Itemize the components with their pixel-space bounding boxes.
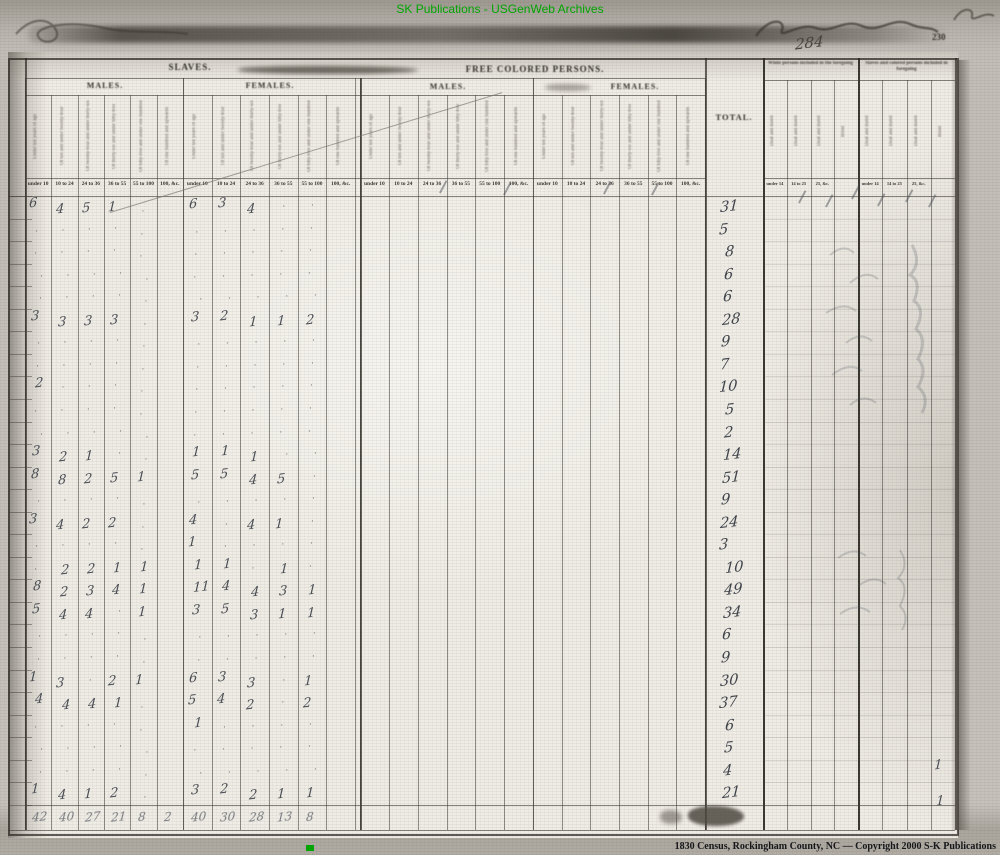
header-total-label: TOTAL. — [706, 112, 762, 122]
row-total-value: 21 — [722, 784, 741, 802]
gutter-row-tick — [10, 241, 32, 242]
table-column-line — [418, 95, 419, 830]
census-cell-value: 2 — [108, 515, 117, 531]
table-column-line — [533, 78, 534, 830]
ditto-dot: · — [313, 472, 316, 482]
ditto-dot: · — [311, 517, 314, 527]
census-cell-value: 2 — [220, 782, 229, 798]
age-range-header: 10 to 24 — [562, 181, 591, 187]
age-range-header: under 14 — [763, 181, 787, 186]
gutter-row-tick — [10, 805, 32, 806]
right-margin-mark: 1 — [936, 793, 945, 809]
row-total-value: 3 — [719, 537, 729, 554]
census-cell-value: 1 — [221, 443, 230, 459]
column-header-rotated: Deaf and dumb — [794, 88, 804, 174]
census-cell-value: 3 — [192, 602, 201, 618]
age-range-header: under 10 — [533, 181, 562, 187]
ditto-dot: · — [226, 339, 229, 349]
ditto-dot: · — [308, 269, 311, 279]
header-fc-females-label: FEMALES. — [580, 82, 690, 91]
census-cell-value: 1 — [306, 786, 315, 802]
census-cell-value: 4 — [189, 512, 198, 528]
ditto-dot: · — [64, 338, 67, 348]
census-cell-value: 4 — [246, 201, 255, 217]
table-column-line — [326, 95, 327, 830]
ditto-dot: · — [89, 676, 92, 686]
bleed-through-scribbles-lower — [830, 540, 950, 630]
census-cell-value: 3 — [110, 312, 119, 328]
header-slaves-females-label: FEMALES. — [200, 81, 340, 90]
census-cell-value: 3 — [249, 607, 258, 623]
gutter-row-tick — [10, 534, 32, 535]
column-header-rotated: Of ten and under twenty-four — [398, 98, 408, 174]
census-cell-value: 3 — [57, 314, 66, 330]
census-cell-value: 2 — [58, 449, 67, 465]
ditto-dot: · — [67, 744, 70, 754]
gutter-row-tick — [10, 579, 32, 580]
ditto-dot: · — [34, 723, 37, 733]
ditto-dot: · — [257, 767, 260, 777]
table-column-line — [504, 95, 505, 830]
ditto-dot: · — [62, 226, 65, 236]
ditto-dot: · — [113, 404, 116, 414]
row-total-value: 24 — [720, 513, 739, 531]
ditto-dot: · — [90, 653, 93, 663]
ditto-dot: · — [146, 433, 149, 443]
ditto-dot: · — [284, 630, 287, 640]
table-row-line — [763, 670, 955, 671]
ditto-dot: · — [193, 431, 196, 441]
table-row-line — [763, 715, 955, 716]
table-column-line — [157, 95, 158, 830]
census-cell-value: 5 — [220, 466, 229, 482]
row-total-value: 51 — [722, 468, 741, 486]
gutter-row-tick — [10, 399, 32, 400]
census-cell-value: 1 — [194, 557, 203, 573]
age-range-header: 55 to 100 — [475, 181, 504, 187]
census-cell-value: 4 — [35, 691, 44, 707]
ditto-dot: · — [87, 405, 90, 415]
census-cell-value: 1 — [114, 695, 123, 711]
row-total-value: 7 — [720, 356, 730, 373]
table-column-line — [269, 95, 270, 830]
census-cell-value: 2 — [306, 312, 315, 328]
ditto-dot: · — [88, 382, 91, 392]
ditto-dot: · — [144, 320, 147, 330]
gutter-row-tick — [10, 444, 32, 445]
ditto-dot: · — [67, 271, 70, 281]
ditto-dot: · — [119, 269, 122, 279]
ditto-dot: · — [89, 360, 92, 370]
age-range-header: 25, &c. — [907, 181, 931, 186]
ditto-dot: · — [223, 723, 226, 733]
row-total-value: 9 — [721, 491, 731, 508]
table-row-line — [763, 692, 955, 693]
column-tally-value: 40 — [58, 809, 74, 825]
ditto-dot: · — [61, 722, 64, 732]
census-cell-value: 5 — [188, 692, 197, 708]
ditto-dot: · — [114, 539, 117, 549]
column-header-rotated: Of one hundred and upwards — [686, 98, 696, 174]
ditto-dot: · — [145, 771, 148, 781]
column-header-rotated: Of twenty-four and under thirty-six — [86, 98, 96, 174]
census-cell-value: 2 — [110, 786, 119, 802]
ditto-dot: · — [116, 652, 119, 662]
census-cell-value: 8 — [33, 579, 42, 595]
ditto-dot: · — [37, 655, 40, 665]
ditto-dot: · — [252, 406, 255, 416]
table-row-line — [763, 444, 955, 445]
census-cell-value: 4 — [84, 606, 93, 622]
table-row-line — [25, 78, 705, 79]
header-white-persons-title: White persons included in the foregoing — [765, 61, 856, 67]
ditto-dot: · — [34, 407, 37, 417]
table-column-line — [834, 80, 835, 830]
ditto-dot: · — [285, 450, 288, 460]
census-cell-value: 4 — [250, 585, 259, 601]
column-tally-value: 28 — [248, 809, 264, 825]
row-total-value: 9 — [721, 649, 731, 666]
gutter-row-tick — [10, 624, 32, 625]
gutter-row-tick — [10, 489, 32, 490]
census-cell-value: 1 — [249, 449, 258, 465]
column-tally-value: 21 — [111, 809, 127, 825]
column-header-rotated: Of twenty-four and under thirty-six — [250, 98, 260, 174]
ditto-dot: · — [197, 498, 200, 508]
census-cell-value: 3 — [32, 443, 41, 459]
table-column-line — [811, 80, 812, 830]
column-header-rotated: Under ten years of age — [369, 98, 379, 174]
table-row-line — [25, 178, 705, 179]
census-cell-value: 1 — [192, 444, 201, 460]
census-cell-value: 5 — [32, 601, 41, 617]
census-cell-value: 1 — [137, 604, 146, 620]
gutter-row-tick — [10, 286, 32, 287]
ditto-dot: · — [93, 428, 96, 438]
column-header-rotated: Of ten and under twenty-four — [571, 98, 581, 174]
table-column-line — [931, 80, 932, 830]
gutter-row-tick — [10, 737, 32, 738]
column-header-rotated: Of one hundred and upwards — [336, 98, 346, 174]
copyright-credit-text: 1830 Census, Rockingham County, NC — Cop… — [675, 841, 996, 852]
ditto-dot: · — [199, 295, 202, 305]
census-cell-value: 3 — [83, 313, 92, 329]
ditto-dot: · — [37, 339, 40, 349]
ditto-dot: · — [140, 726, 143, 736]
column-tally-value: 13 — [277, 809, 293, 825]
census-cell-value: 2 — [59, 585, 68, 601]
census-cell-value: 1 — [134, 672, 143, 688]
age-range-header: 55 to 100 — [648, 181, 677, 187]
ditto-dot: · — [312, 652, 315, 662]
table-column-line — [212, 95, 213, 830]
ditto-dot: · — [195, 385, 198, 395]
census-cell-value: 2 — [108, 673, 117, 689]
ditto-dot: · — [140, 252, 143, 262]
table-row-line — [25, 95, 705, 96]
age-range-header: 36 to 55 — [619, 181, 648, 187]
row-total-value: 14 — [723, 446, 742, 464]
ditto-dot: · — [310, 539, 313, 549]
column-header-rotated: Of fifty-five and under one hundred — [139, 98, 149, 174]
census-cell-value: 1 — [277, 313, 286, 329]
age-range-header: 10 to 24 — [51, 181, 77, 187]
ditto-dot: · — [118, 607, 121, 617]
ditto-dot: · — [87, 247, 90, 257]
column-header-rotated: Of ten and under twenty-four — [60, 98, 70, 174]
age-range-header: under 14 — [858, 181, 882, 186]
ditto-dot: · — [222, 272, 225, 282]
column-header-rotated: Deaf and dumb — [914, 88, 924, 174]
census-cell-value: 3 — [31, 308, 40, 324]
ditto-dot: · — [199, 769, 202, 779]
column-header-rotated: Deaf and dumb — [770, 88, 780, 174]
census-cell-value: 1 — [29, 669, 38, 685]
tally-ink-blot — [688, 806, 744, 826]
ditto-dot: · — [282, 202, 285, 212]
census-cell-value: 2 — [60, 562, 69, 578]
table-column-line — [360, 78, 362, 830]
census-cell-value: 4 — [55, 517, 64, 533]
ditto-dot: · — [87, 721, 90, 731]
ditto-dot: · — [312, 336, 315, 346]
census-cell-value: 1 — [139, 559, 148, 575]
header-slaves-colored-title: Slaves and colored persons included in f… — [860, 61, 953, 73]
census-cell-value: 8 — [57, 472, 66, 488]
age-range-header: 55 to 100 — [298, 181, 327, 187]
ditto-dot: · — [114, 381, 117, 391]
census-cell-value: 5 — [110, 470, 119, 486]
row-total-value: 10 — [719, 378, 738, 396]
ditto-dot: · — [254, 361, 257, 371]
ditto-dot: · — [255, 338, 258, 348]
table-column-line — [676, 95, 677, 830]
age-range-header: 36 to 55 — [447, 181, 476, 187]
column-header-rotated: Of fifty-five and under one hundred — [485, 98, 495, 174]
ditto-dot: · — [228, 294, 231, 304]
census-cell-value: 3 — [191, 783, 200, 799]
ditto-dot: · — [281, 698, 284, 708]
ditto-dot: · — [226, 655, 229, 665]
row-total-value: 5 — [719, 221, 729, 238]
ditto-dot: · — [117, 629, 120, 639]
age-range-header: 100, &c. — [157, 181, 183, 187]
column-tally-value: 8 — [306, 810, 315, 825]
table-column-line — [475, 95, 476, 830]
ditto-dot: · — [285, 766, 288, 776]
ditto-dot: · — [146, 275, 149, 285]
age-range-header: 24 to 36 — [590, 181, 619, 187]
ditto-dot: · — [309, 720, 312, 730]
gutter-row-tick — [10, 602, 32, 603]
age-range-header: 10 to 24 — [389, 181, 418, 187]
gutter-row-tick — [10, 467, 32, 468]
column-header-rotated: Under ten years of age — [192, 98, 202, 174]
row-total-value: 28 — [722, 311, 741, 329]
ditto-dot: · — [113, 246, 116, 256]
ditto-dot: · — [312, 494, 315, 504]
ditto-dot: · — [114, 224, 117, 234]
census-cell-value: 3 — [85, 584, 94, 600]
ditto-dot: · — [309, 246, 312, 256]
row-total-value: 2 — [724, 424, 734, 441]
bleed-through-scribbles-upper — [820, 235, 955, 435]
ditto-dot: · — [310, 381, 313, 391]
table-column-line — [389, 95, 390, 830]
ditto-dot: · — [142, 523, 145, 533]
ditto-dot: · — [63, 361, 66, 371]
census-cell-value: 1 — [138, 582, 147, 598]
ditto-dot: · — [118, 291, 121, 301]
ditto-dot: · — [143, 342, 146, 352]
column-header-rotated: Deaf and dumb — [865, 88, 875, 174]
column-header-rotated: Of twenty-four and under thirty-six — [600, 98, 610, 174]
right-margin-mark: 1 — [934, 757, 943, 773]
row-total-value: 6 — [722, 627, 732, 644]
census-cell-value: 2 — [248, 788, 257, 804]
column-header-rotated: Of fifty-five and under one hundred — [657, 98, 667, 174]
ditto-dot: · — [309, 562, 312, 572]
gutter-row-tick — [10, 376, 32, 377]
age-range-header: 100, &c. — [676, 181, 705, 187]
ditto-dot: · — [279, 743, 282, 753]
census-cell-value: 1 — [307, 605, 316, 621]
table-column-line — [590, 95, 591, 830]
census-cell-value: 4 — [58, 607, 67, 623]
ditto-dot: · — [282, 360, 285, 370]
ditto-dot: · — [251, 429, 254, 439]
row-total-value: 5 — [724, 740, 734, 757]
row-total-value: 8 — [725, 243, 735, 260]
ditto-dot: · — [195, 228, 198, 238]
census-cell-value: 6 — [189, 196, 198, 212]
census-cell-value: 5 — [277, 471, 286, 487]
census-cell-value: 5 — [221, 601, 230, 617]
gutter-row-tick — [10, 760, 32, 761]
ditto-dot: · — [193, 746, 196, 756]
ditto-dot: · — [280, 247, 283, 257]
age-range-header: under 10 — [360, 181, 389, 187]
ditto-dot: · — [67, 429, 70, 439]
row-total-value: 31 — [720, 198, 739, 216]
ditto-dot: · — [253, 541, 256, 551]
age-range-header: 25, &c. — [811, 181, 835, 186]
ditto-dot: · — [253, 383, 256, 393]
ditto-dot: · — [314, 765, 317, 775]
ditto-dot: · — [118, 765, 121, 775]
column-header-rotated: Of twenty-four and under thirty-six — [427, 98, 437, 174]
gutter-row-tick — [10, 557, 32, 558]
census-cell-value: 2 — [303, 695, 312, 711]
ditto-dot: · — [93, 270, 96, 280]
row-total-value: 30 — [720, 671, 739, 689]
ditto-dot: · — [282, 676, 285, 686]
column-header-rotated: Deaf and dumb — [817, 88, 827, 174]
table-row-line — [763, 534, 955, 535]
ditto-dot: · — [314, 449, 317, 459]
ditto-dot: · — [198, 633, 201, 643]
table-column-line — [648, 95, 649, 830]
column-tally-value: 2 — [163, 810, 172, 825]
ditto-dot: · — [193, 273, 196, 283]
age-range-header: 36 to 55 — [269, 181, 298, 187]
gutter-row-tick — [10, 354, 32, 355]
age-range-header: 36 to 55 — [104, 181, 130, 187]
census-cell-value: 2 — [220, 308, 229, 324]
ditto-dot: · — [34, 249, 37, 259]
column-header-rotated: Of ten and under twenty-four — [221, 98, 231, 174]
column-header-rotated: Of fifty-five and under one hundred — [307, 98, 317, 174]
ditto-dot: · — [62, 541, 65, 551]
ditto-dot: · — [308, 742, 311, 752]
age-range-header: 24 to 36 — [78, 181, 104, 187]
table-column-line — [787, 80, 788, 830]
ditto-dot: · — [88, 540, 91, 550]
column-header-rotated: Of thirty-six and under fifty-five — [456, 98, 466, 174]
census-cell-value: 1 — [223, 556, 232, 572]
census-cell-value: 4 — [222, 579, 231, 595]
census-cell-value: 1 — [113, 560, 122, 576]
census-cell-value: 1 — [194, 715, 203, 731]
column-tally-value: 30 — [220, 809, 236, 825]
ditto-dot: · — [35, 542, 38, 552]
census-cell-value: 2 — [83, 471, 92, 487]
header-fc-males-label: MALES. — [378, 82, 518, 91]
ditto-dot: · — [225, 520, 228, 530]
census-cell-value: 3 — [218, 195, 227, 211]
gutter-row-tick — [10, 715, 32, 716]
census-cell-value: 3 — [218, 669, 227, 685]
column-tally-value: 27 — [84, 809, 100, 825]
ditto-dot: · — [40, 272, 43, 282]
ditto-dot: · — [119, 427, 122, 437]
header-illegible-smudge — [238, 66, 418, 74]
table-row-line — [8, 196, 955, 197]
census-cell-value: 1 — [83, 787, 92, 803]
ditto-dot: · — [92, 766, 95, 776]
ditto-dot: · — [226, 497, 229, 507]
ditto-dot: · — [141, 387, 144, 397]
census-cell-value: 2 — [35, 376, 44, 392]
ditto-dot: · — [224, 227, 227, 237]
ditto-dot: · — [197, 656, 200, 666]
row-total-value: 9 — [721, 334, 731, 351]
age-range-header: 100, &c. — [326, 181, 355, 187]
ditto-dot: · — [256, 631, 259, 641]
table-column-line — [78, 95, 79, 830]
census-cell-value: 1 — [304, 673, 313, 689]
ditto-dot: · — [37, 497, 40, 507]
ditto-dot: · — [143, 500, 146, 510]
ditto-dot: · — [222, 745, 225, 755]
column-header-rotated: Of thirty-six and under fifty-five — [112, 98, 122, 174]
column-header-rotated: Under ten years of age — [33, 98, 43, 174]
gutter-row-tick — [10, 309, 32, 310]
census-cell-value: 1 — [108, 199, 117, 215]
row-total-value: 6 — [724, 266, 734, 283]
ditto-dot: · — [141, 230, 144, 240]
ditto-dot: · — [285, 292, 288, 302]
header-slaves-males-label: MALES. — [40, 81, 170, 90]
table-column-line — [907, 80, 908, 830]
census-cell-value: 2 — [81, 516, 90, 532]
ditto-dot: · — [142, 207, 145, 217]
green-mark — [306, 845, 314, 851]
ditto-dot: · — [66, 293, 69, 303]
column-tally-value: 42 — [32, 809, 48, 825]
ditto-dot: · — [39, 768, 42, 778]
ditto-dot: · — [144, 635, 147, 645]
